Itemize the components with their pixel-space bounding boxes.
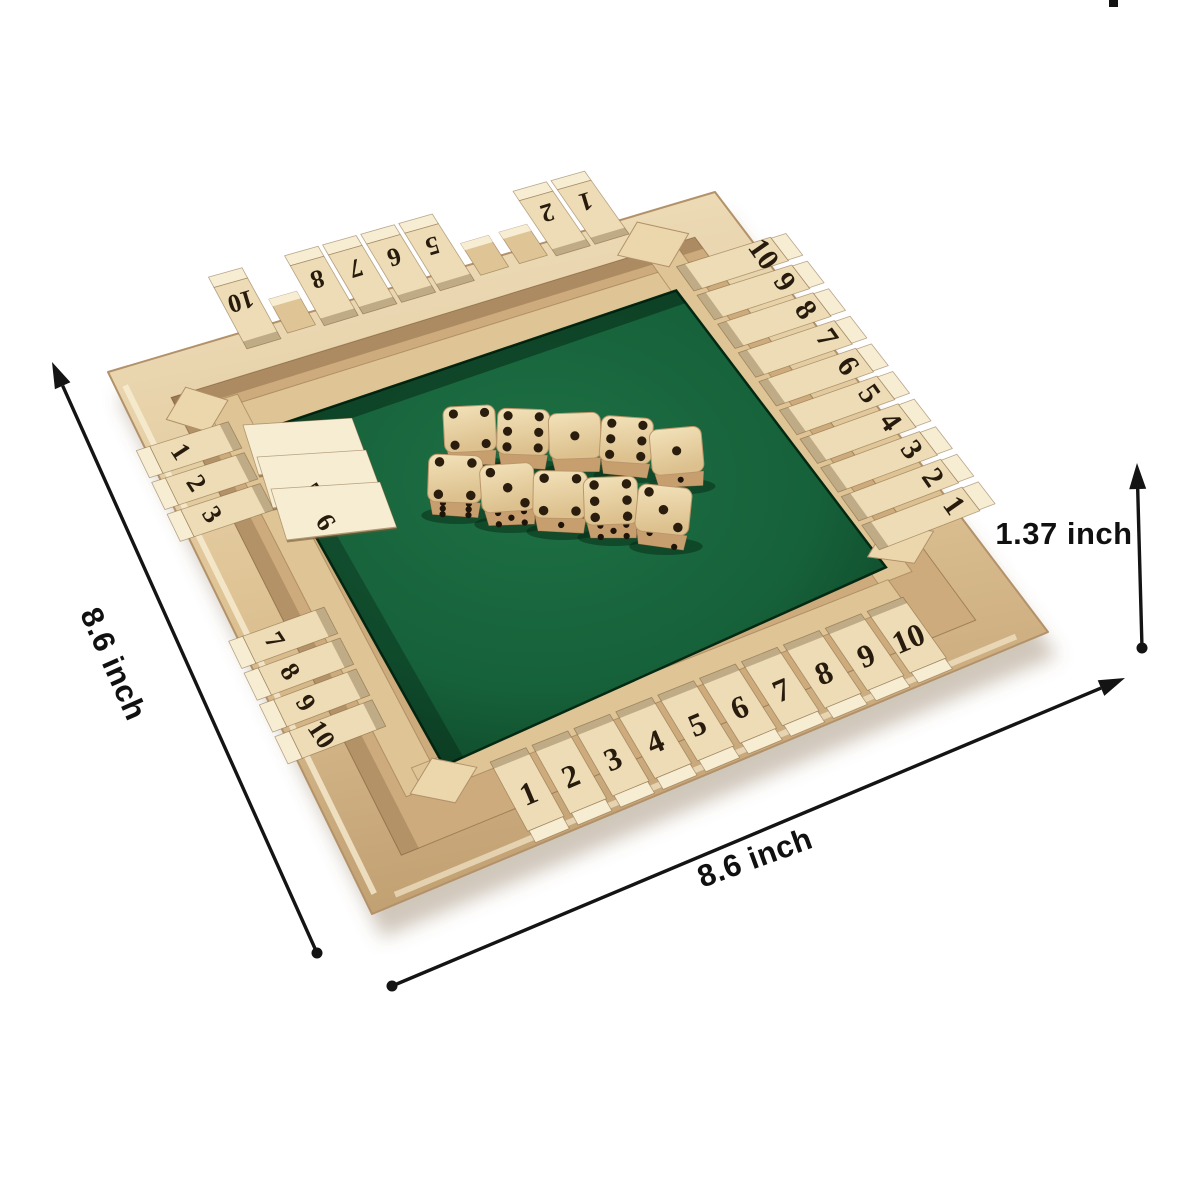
die-front-3 — [532, 470, 587, 533]
die-back-2 — [496, 408, 550, 470]
height-dimension-label: 1.37 inch — [995, 516, 1132, 552]
game-board: 1087652110987654321123456789101234567891… — [108, 171, 1058, 938]
dimension-arrowhead — [52, 362, 70, 389]
dimension-line — [1138, 489, 1142, 648]
dimension-arrowhead — [1129, 463, 1146, 489]
dimension-end-dot — [387, 981, 398, 992]
height-dimension — [1129, 463, 1147, 654]
die-back-5 — [649, 426, 706, 490]
die-front-2 — [479, 462, 537, 528]
die-front-4 — [583, 476, 639, 541]
dimension-end-dot — [1137, 643, 1148, 654]
product-photo: 1087652110987654321123456789101234567891… — [0, 0, 1200, 1200]
dimension-arrowhead — [1098, 678, 1125, 696]
dimension-end-dot — [312, 948, 323, 959]
die-back-3 — [548, 412, 602, 474]
cropped-dimension-mark — [1109, 0, 1118, 7]
die-front-5 — [633, 483, 693, 551]
die-back-4 — [598, 415, 654, 478]
die-front-1 — [427, 454, 483, 519]
tile-top-10: 10 — [208, 268, 281, 349]
shut-the-box-illustration: 1087652110987654321123456789101234567891… — [0, 0, 1200, 1200]
